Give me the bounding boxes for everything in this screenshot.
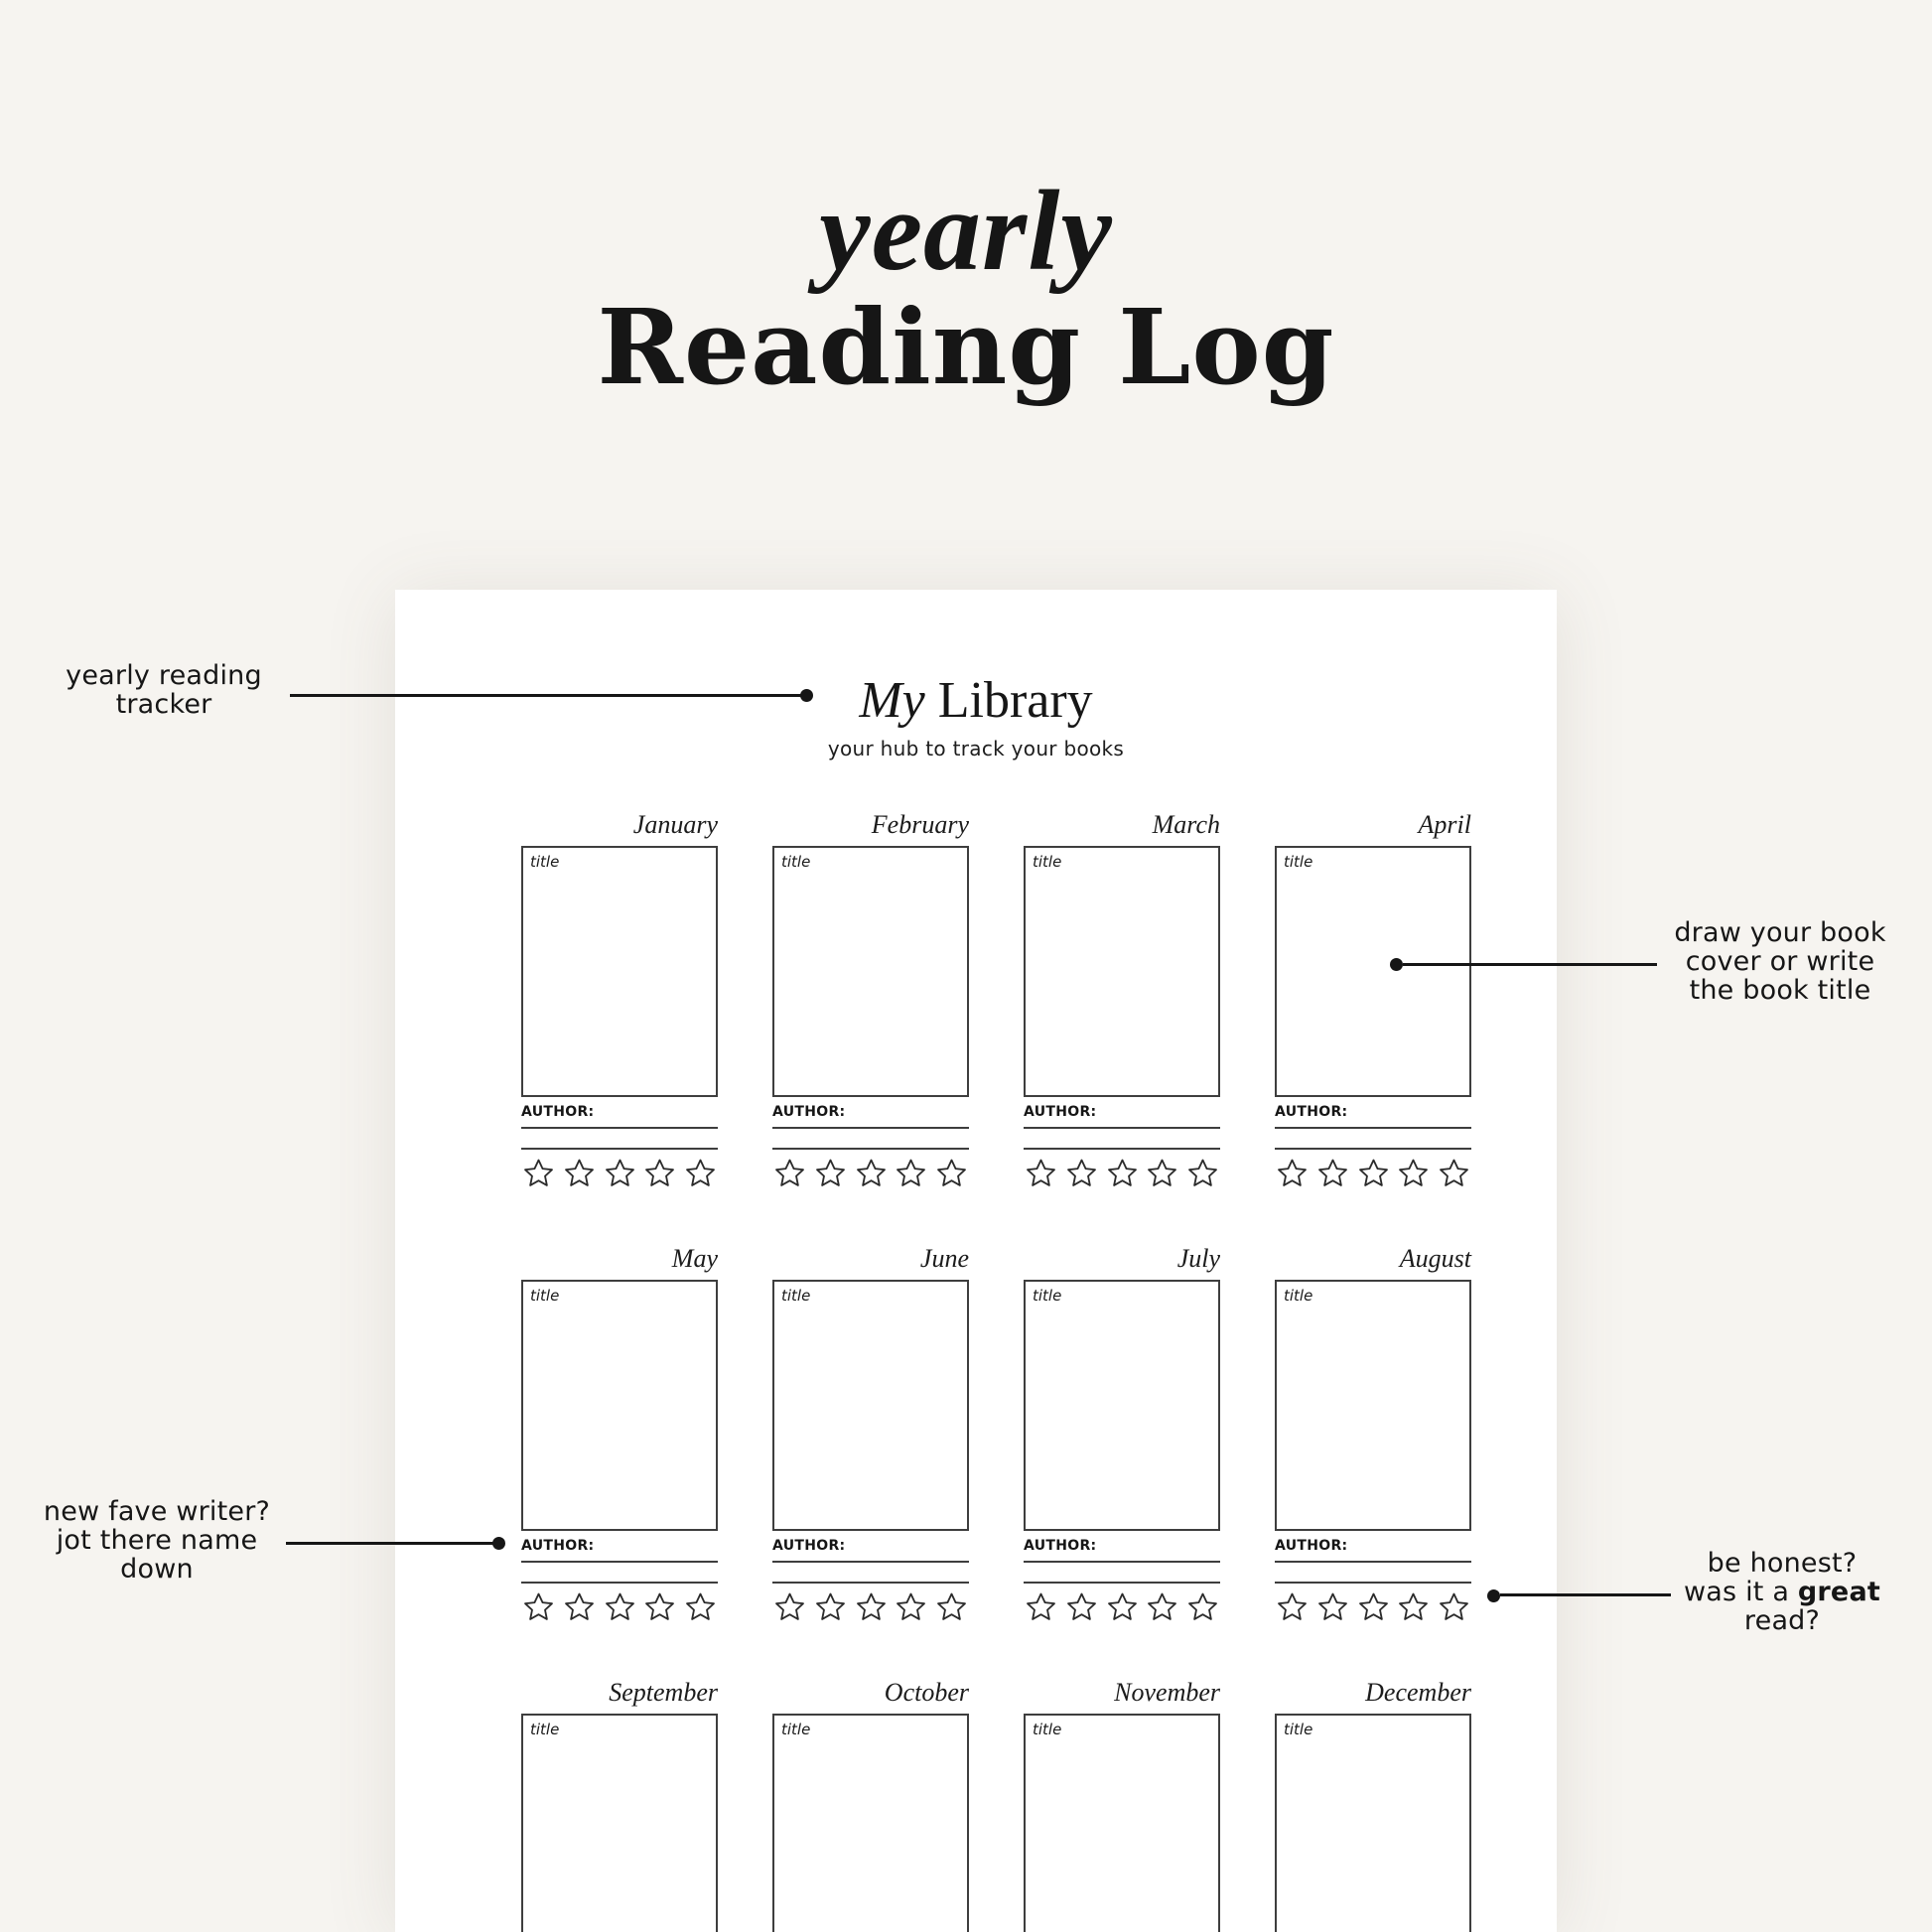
book-cover-box[interactable]: title	[1024, 846, 1220, 1097]
book-cover-box[interactable]: title	[1024, 1714, 1220, 1932]
rating-divider	[1275, 1148, 1471, 1150]
author-label: AUTHOR:	[521, 1538, 594, 1554]
rating-divider	[1024, 1582, 1220, 1584]
annotation-yearly-tracker: yearly reading tracker	[28, 661, 300, 719]
star-icon[interactable]	[1185, 1590, 1220, 1624]
star-row	[772, 1589, 969, 1625]
callout-line-rating	[1500, 1593, 1671, 1596]
book-cover-box[interactable]: title	[1275, 1714, 1471, 1932]
star-icon[interactable]	[1185, 1157, 1220, 1190]
star-icon[interactable]	[1024, 1157, 1058, 1190]
month-label: August	[1275, 1244, 1471, 1274]
star-icon[interactable]	[562, 1590, 597, 1624]
author-label: AUTHOR:	[1275, 1104, 1347, 1120]
author-line[interactable]: AUTHOR:	[1024, 1537, 1220, 1563]
author-line[interactable]: AUTHOR:	[1024, 1103, 1220, 1129]
star-icon[interactable]	[934, 1157, 969, 1190]
callout-line-author-name	[286, 1542, 494, 1545]
month-card: August title AUTHOR:	[1275, 1244, 1471, 1625]
star-icon[interactable]	[894, 1157, 928, 1190]
month-label: September	[521, 1678, 718, 1708]
star-icon[interactable]	[683, 1590, 718, 1624]
book-cover-box[interactable]: title	[1275, 1280, 1471, 1531]
page-heading-accent: My	[859, 672, 924, 729]
rating-divider	[772, 1148, 969, 1150]
cover-title-label: title	[1284, 853, 1312, 871]
callout-dot-book-cover	[1390, 958, 1403, 971]
star-icon[interactable]	[1315, 1157, 1350, 1190]
star-icon[interactable]	[1315, 1590, 1350, 1624]
cover-title-label: title	[530, 853, 559, 871]
callout-dot-rating	[1487, 1589, 1500, 1602]
star-row	[1024, 1156, 1220, 1191]
star-icon[interactable]	[1145, 1590, 1179, 1624]
star-icon[interactable]	[603, 1590, 637, 1624]
star-icon[interactable]	[1275, 1157, 1310, 1190]
star-icon[interactable]	[1437, 1157, 1471, 1190]
author-label: AUTHOR:	[1275, 1538, 1347, 1554]
author-label: AUTHOR:	[521, 1104, 594, 1120]
cover-title-label: title	[1284, 1721, 1312, 1738]
cover-title-label: title	[1033, 1721, 1061, 1738]
cover-title-label: title	[1284, 1287, 1312, 1305]
rating-divider	[772, 1582, 969, 1584]
star-row	[1275, 1589, 1471, 1625]
page-subtitle: your hub to track your books	[395, 737, 1557, 760]
star-icon[interactable]	[1396, 1157, 1431, 1190]
page-heading: My Library	[395, 673, 1557, 729]
author-line[interactable]: AUTHOR:	[1275, 1537, 1471, 1563]
star-icon[interactable]	[1356, 1157, 1391, 1190]
cover-title-label: title	[781, 1287, 810, 1305]
star-icon[interactable]	[1356, 1590, 1391, 1624]
star-icon[interactable]	[854, 1157, 889, 1190]
annotation-book-cover: draw your book cover or write the book t…	[1654, 918, 1906, 1005]
star-icon[interactable]	[603, 1157, 637, 1190]
author-line[interactable]: AUTHOR:	[521, 1537, 718, 1563]
month-label: December	[1275, 1678, 1471, 1708]
month-label: April	[1275, 810, 1471, 840]
star-icon[interactable]	[1275, 1590, 1310, 1624]
month-label: July	[1024, 1244, 1220, 1274]
star-icon[interactable]	[683, 1157, 718, 1190]
month-card: April title AUTHOR:	[1275, 810, 1471, 1191]
month-label: June	[772, 1244, 969, 1274]
annotation-author-name: new fave writer? jot there name down	[26, 1497, 288, 1584]
star-icon[interactable]	[642, 1590, 677, 1624]
month-card: February title AUTHOR:	[772, 810, 969, 1191]
month-label: February	[772, 810, 969, 840]
main-title-italic: yearly	[0, 157, 1932, 306]
star-row	[521, 1156, 718, 1191]
author-line[interactable]: AUTHOR:	[772, 1103, 969, 1129]
star-icon[interactable]	[1064, 1590, 1099, 1624]
star-icon[interactable]	[1105, 1157, 1140, 1190]
page-heading-rest: Library	[938, 672, 1093, 729]
star-row	[1275, 1156, 1471, 1191]
month-card: May title AUTHOR:	[521, 1244, 718, 1625]
month-label: November	[1024, 1678, 1220, 1708]
book-cover-box[interactable]: title	[521, 1280, 718, 1531]
author-label: AUTHOR:	[1024, 1104, 1096, 1120]
month-card: September title AUTHOR:	[521, 1678, 718, 1932]
star-icon[interactable]	[642, 1157, 677, 1190]
product-preview-canvas: yearly Reading Log My Library your hub t…	[0, 0, 1932, 1932]
month-card: July title AUTHOR:	[1024, 1244, 1220, 1625]
author-line[interactable]: AUTHOR:	[1275, 1103, 1471, 1129]
book-cover-box[interactable]: title	[772, 1280, 969, 1531]
annotation-rating: be honest? was it a great read?	[1660, 1549, 1904, 1635]
star-icon[interactable]	[1105, 1590, 1140, 1624]
cover-title-label: title	[1033, 1287, 1061, 1305]
callout-dot-yearly-tracker	[800, 689, 813, 702]
author-label: AUTHOR:	[772, 1104, 845, 1120]
star-icon[interactable]	[562, 1157, 597, 1190]
month-card: October title AUTHOR:	[772, 1678, 969, 1932]
months-grid: January title AUTHOR:	[521, 810, 1471, 1932]
star-icon[interactable]	[854, 1590, 889, 1624]
book-cover-box[interactable]: title	[772, 1714, 969, 1932]
month-card: November title AUTHOR:	[1024, 1678, 1220, 1932]
month-label: March	[1024, 810, 1220, 840]
book-cover-box[interactable]: title	[772, 846, 969, 1097]
cover-title-label: title	[530, 1721, 559, 1738]
callout-dot-author-name	[492, 1537, 505, 1550]
cover-title-label: title	[781, 1721, 810, 1738]
rating-divider	[521, 1148, 718, 1150]
rating-divider	[1275, 1582, 1471, 1584]
author-line[interactable]: AUTHOR:	[521, 1103, 718, 1129]
author-line[interactable]: AUTHOR:	[772, 1537, 969, 1563]
main-title-bold: Reading Log	[0, 292, 1932, 403]
star-icon[interactable]	[1396, 1590, 1431, 1624]
author-label: AUTHOR:	[1024, 1538, 1096, 1554]
month-card: June title AUTHOR:	[772, 1244, 969, 1625]
star-icon[interactable]	[521, 1157, 556, 1190]
book-cover-box[interactable]: title	[1275, 846, 1471, 1097]
star-icon[interactable]	[934, 1590, 969, 1624]
rating-divider	[1024, 1148, 1220, 1150]
month-card: March title AUTHOR:	[1024, 810, 1220, 1191]
main-title: yearly Reading Log	[0, 157, 1932, 403]
star-icon[interactable]	[894, 1590, 928, 1624]
star-icon[interactable]	[813, 1590, 848, 1624]
book-cover-box[interactable]: title	[521, 1714, 718, 1932]
cover-title-label: title	[1033, 853, 1061, 871]
star-icon[interactable]	[1064, 1157, 1099, 1190]
book-cover-box[interactable]: title	[1024, 1280, 1220, 1531]
rating-divider	[521, 1582, 718, 1584]
cover-title-label: title	[781, 853, 810, 871]
star-icon[interactable]	[521, 1590, 556, 1624]
month-card: December title AUTHOR:	[1275, 1678, 1471, 1932]
book-cover-box[interactable]: title	[521, 846, 718, 1097]
star-icon[interactable]	[1145, 1157, 1179, 1190]
star-icon[interactable]	[1024, 1590, 1058, 1624]
star-row	[772, 1156, 969, 1191]
callout-line-yearly-tracker	[290, 694, 802, 697]
month-label: May	[521, 1244, 718, 1274]
month-card: January title AUTHOR:	[521, 810, 718, 1191]
reading-log-page: My Library your hub to track your books …	[395, 590, 1557, 1932]
star-row	[1024, 1589, 1220, 1625]
author-label: AUTHOR:	[772, 1538, 845, 1554]
cover-title-label: title	[530, 1287, 559, 1305]
star-icon[interactable]	[772, 1157, 807, 1190]
star-icon[interactable]	[1437, 1590, 1471, 1624]
star-icon[interactable]	[813, 1157, 848, 1190]
star-row	[521, 1589, 718, 1625]
month-label: October	[772, 1678, 969, 1708]
callout-line-book-cover	[1403, 963, 1657, 966]
month-label: January	[521, 810, 718, 840]
star-icon[interactable]	[772, 1590, 807, 1624]
